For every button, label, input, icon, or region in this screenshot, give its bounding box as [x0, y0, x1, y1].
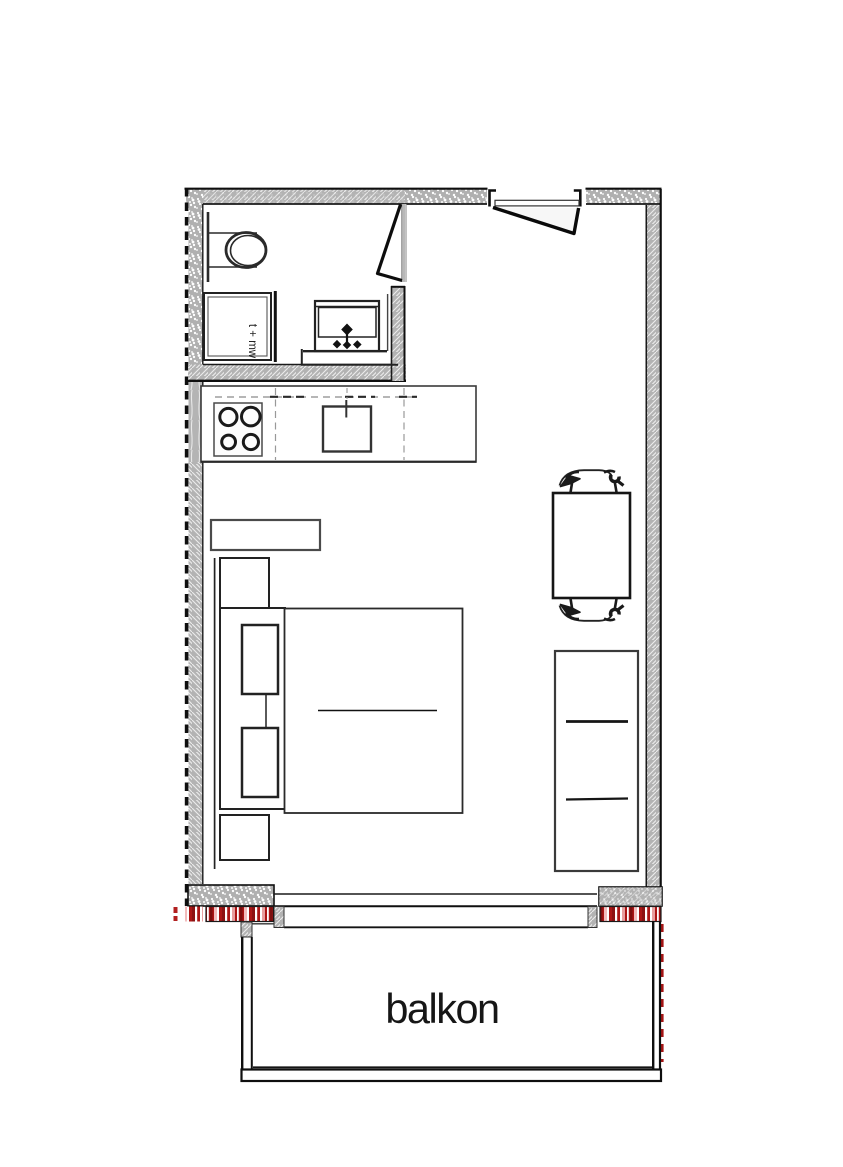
svg-text:t + mw: t + mw: [246, 324, 258, 359]
svg-text:balkon: balkon: [385, 985, 498, 1032]
